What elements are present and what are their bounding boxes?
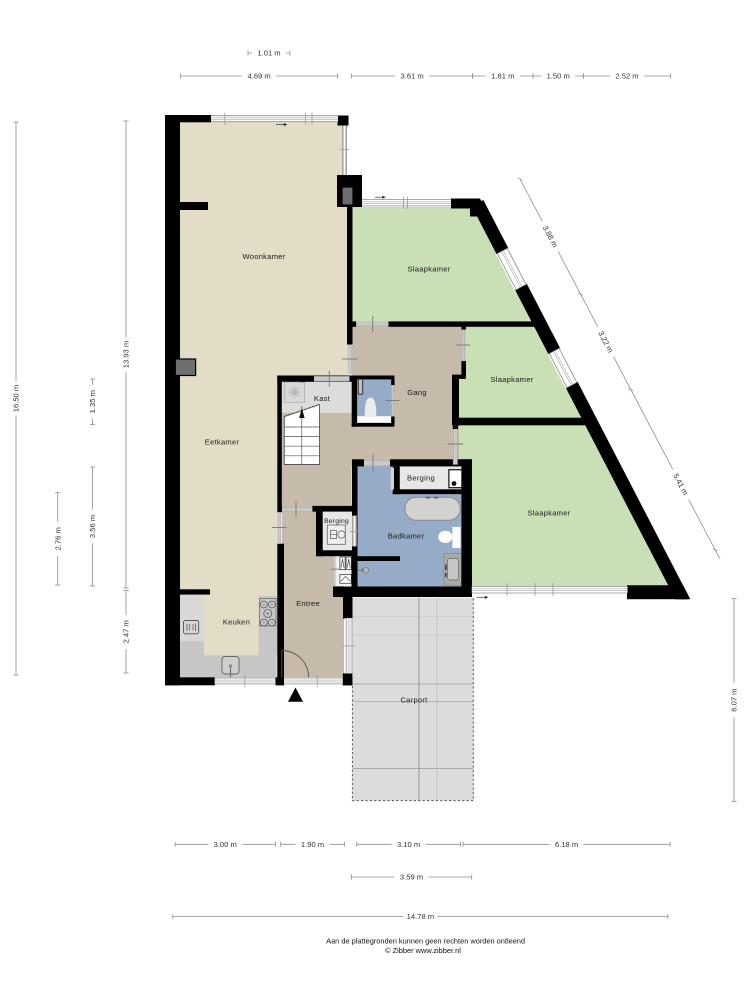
svg-text:Gang: Gang (407, 388, 427, 397)
svg-text:2.47 m: 2.47 m (122, 620, 131, 643)
svg-text:3.88 m: 3.88 m (541, 224, 560, 249)
svg-text:Badkamer: Badkamer (388, 531, 425, 540)
svg-text:Eetkamer: Eetkamer (205, 437, 240, 446)
svg-text:2.52 m: 2.52 m (615, 72, 638, 81)
svg-text:1.35 m: 1.35 m (88, 390, 97, 413)
svg-text:5.41 m: 5.41 m (671, 472, 690, 497)
svg-text:Entree: Entree (296, 599, 320, 608)
svg-text:Slaapkamer: Slaapkamer (490, 375, 533, 384)
svg-text:3.10 m: 3.10 m (397, 840, 420, 849)
svg-text:Slaapkamer: Slaapkamer (527, 508, 570, 517)
svg-text:Kast: Kast (314, 394, 331, 403)
svg-text:1.81 m: 1.81 m (491, 72, 514, 81)
svg-text:Aan de plattegronden kunnen ge: Aan de plattegronden kunnen geen rechten… (326, 937, 525, 946)
svg-text:Carport: Carport (400, 696, 428, 705)
svg-text:6.18 m: 6.18 m (555, 840, 578, 849)
svg-text:Woonkamer: Woonkamer (242, 252, 285, 261)
svg-text:13.93 m: 13.93 m (122, 341, 131, 368)
svg-text:4.69 m: 4.69 m (247, 72, 270, 81)
svg-text:1.50 m: 1.50 m (547, 72, 570, 81)
svg-text:© Zibber www.zibber.nl: © Zibber www.zibber.nl (385, 946, 461, 955)
svg-text:1.90 m: 1.90 m (301, 840, 324, 849)
svg-text:Keuken: Keuken (223, 617, 250, 626)
svg-text:1.01 m: 1.01 m (257, 49, 280, 58)
svg-text:3.22 m: 3.22 m (596, 329, 615, 354)
svg-text:6.07 m: 6.07 m (730, 688, 739, 711)
svg-text:3.56 m: 3.56 m (88, 515, 97, 538)
svg-text:Slaapkamer: Slaapkamer (407, 264, 450, 273)
svg-text:Berging: Berging (324, 518, 349, 525)
svg-text:14.78 m: 14.78 m (407, 912, 434, 921)
svg-text:3.00 m: 3.00 m (214, 840, 237, 849)
svg-text:Berging: Berging (407, 473, 435, 482)
svg-text:2.76 m: 2.76 m (53, 527, 62, 550)
svg-text:16.50 m: 16.50 m (12, 385, 21, 412)
svg-text:3.59 m: 3.59 m (400, 873, 423, 882)
svg-text:3.61 m: 3.61 m (400, 72, 423, 81)
